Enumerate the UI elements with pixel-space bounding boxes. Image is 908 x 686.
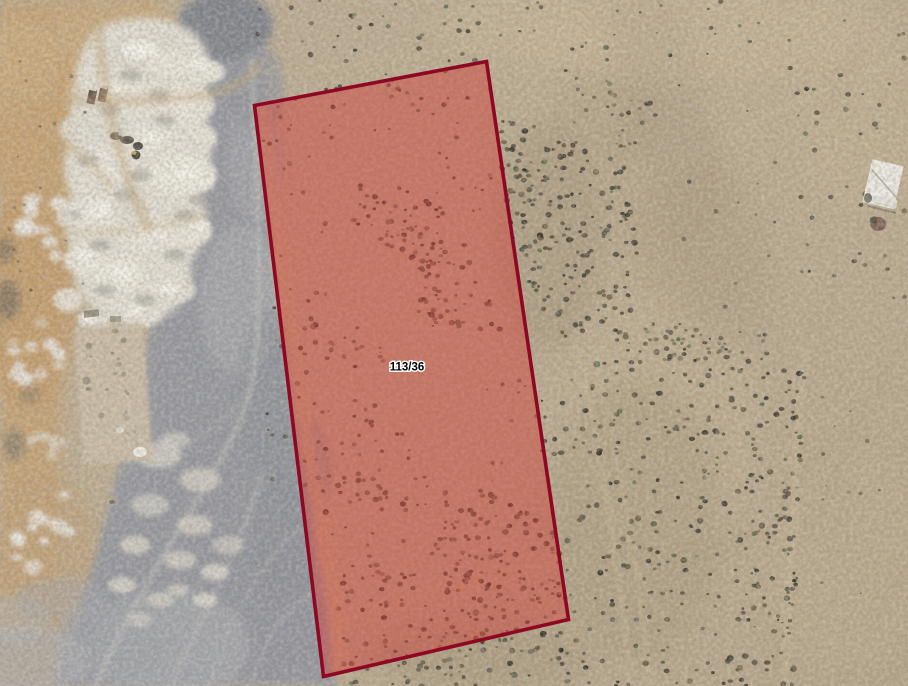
svg-text:113/36: 113/36 <box>390 362 425 374</box>
